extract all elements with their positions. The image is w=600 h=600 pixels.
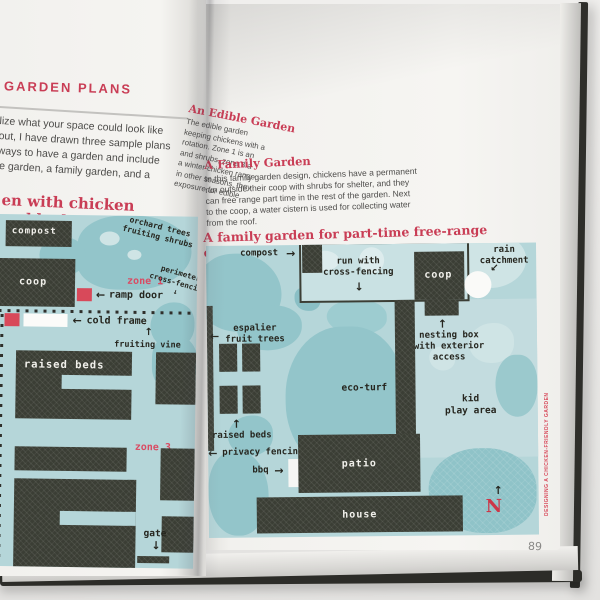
- raised-bed-structure: [242, 343, 260, 371]
- raised-bed-structure: [160, 448, 195, 500]
- ramp-door-marker: [77, 288, 92, 301]
- left-page: GARDEN PLANS lize what your space could …: [0, 0, 206, 576]
- gate-structure: [137, 556, 169, 563]
- family-garden-block: A Family Garden In this family garden de…: [204, 147, 497, 229]
- shrub-highlight: [100, 231, 120, 245]
- left-fence-line: [0, 314, 4, 564]
- raised-bed-structure: [155, 352, 196, 405]
- compass-north: N: [486, 496, 503, 517]
- patio-label: patio: [342, 458, 377, 469]
- page-number: 89: [528, 540, 542, 553]
- raised-bed-structure: [219, 344, 237, 372]
- raised-beds-label: raised beds: [24, 358, 105, 371]
- spine-vertical-text: DESIGNING A CHICKEN-FRIENDLY GARDEN: [544, 386, 550, 516]
- arrow-left-icon: ←: [72, 314, 81, 327]
- arrow-up-icon: ↑: [438, 317, 447, 330]
- path-fence-strip: [395, 300, 416, 440]
- arrow-down-icon: ↓: [354, 280, 363, 293]
- coop-label: coop: [424, 269, 452, 280]
- arrow-left-icon: ←: [210, 330, 219, 343]
- raised-bed-structure: [242, 385, 260, 413]
- eco-turf-label: eco-turf: [341, 382, 387, 393]
- bed-path: [60, 511, 136, 526]
- right-garden-diagram: compost → run with cross-fencing ↓ coop …: [206, 243, 539, 538]
- arrow-right-icon: →: [286, 247, 295, 260]
- rain-catchment-cistern: [464, 271, 491, 298]
- arrow-left-icon: ←: [208, 447, 217, 460]
- run-label: run with cross-fencing: [318, 256, 398, 279]
- kid-play-area-label: kid play area: [440, 393, 502, 418]
- book-photo: GARDEN PLANS lize what your space could …: [0, 0, 600, 600]
- compost-label: compost: [12, 226, 57, 237]
- arrow-down-icon: ↓: [151, 539, 160, 552]
- arrow-right-icon: →: [274, 464, 283, 477]
- cold-frame-red-marker: [4, 313, 19, 326]
- coop-label: coop: [19, 276, 47, 287]
- fruiting-vine-label: fruiting vine: [114, 340, 181, 351]
- nesting-box-structure: [425, 299, 459, 315]
- arrow-left-icon: ←: [96, 288, 105, 301]
- shrub-highlight: [127, 250, 141, 260]
- arrow-up-icon: ↑: [144, 327, 153, 338]
- espalier-fence-strip: [207, 306, 215, 451]
- house-structure: house: [257, 495, 463, 533]
- patio-structure: patio: [298, 434, 421, 493]
- arrow-down-left-icon: ↙: [490, 263, 499, 274]
- house-label: house: [342, 509, 377, 520]
- raised-beds-label: raised beds: [212, 430, 272, 441]
- arrow-up-icon: ↑: [232, 418, 241, 431]
- left-section-heading: GARDEN PLANS: [4, 78, 132, 96]
- left-intro-paragraph: lize what your space could look like out…: [0, 114, 196, 186]
- raised-bed-structure: [219, 386, 237, 414]
- right-page: An Edible Garden The edible garden keepi…: [206, 4, 560, 550]
- espalier-label: espalier fruit trees: [223, 323, 287, 346]
- gate-label: gate: [143, 528, 166, 539]
- raised-bed-structure: [14, 446, 126, 472]
- left-garden-diagram: compost coop ← ramp door zone 1 orchard …: [0, 214, 198, 569]
- privacy-fencing-label: privacy fencing: [222, 447, 303, 458]
- bed-path: [62, 375, 134, 390]
- rain-catchment-label: rain catchment: [472, 245, 536, 267]
- family-garden-paragraph: In this family garden design, chickens h…: [205, 163, 497, 229]
- nesting-box-label: nesting box with exterior access: [411, 330, 487, 364]
- cold-frame-marker: [23, 313, 67, 327]
- bbq-label: bbq: [252, 465, 268, 475]
- compost-label: compost: [240, 248, 278, 258]
- cold-frame-label: cold frame: [86, 315, 146, 327]
